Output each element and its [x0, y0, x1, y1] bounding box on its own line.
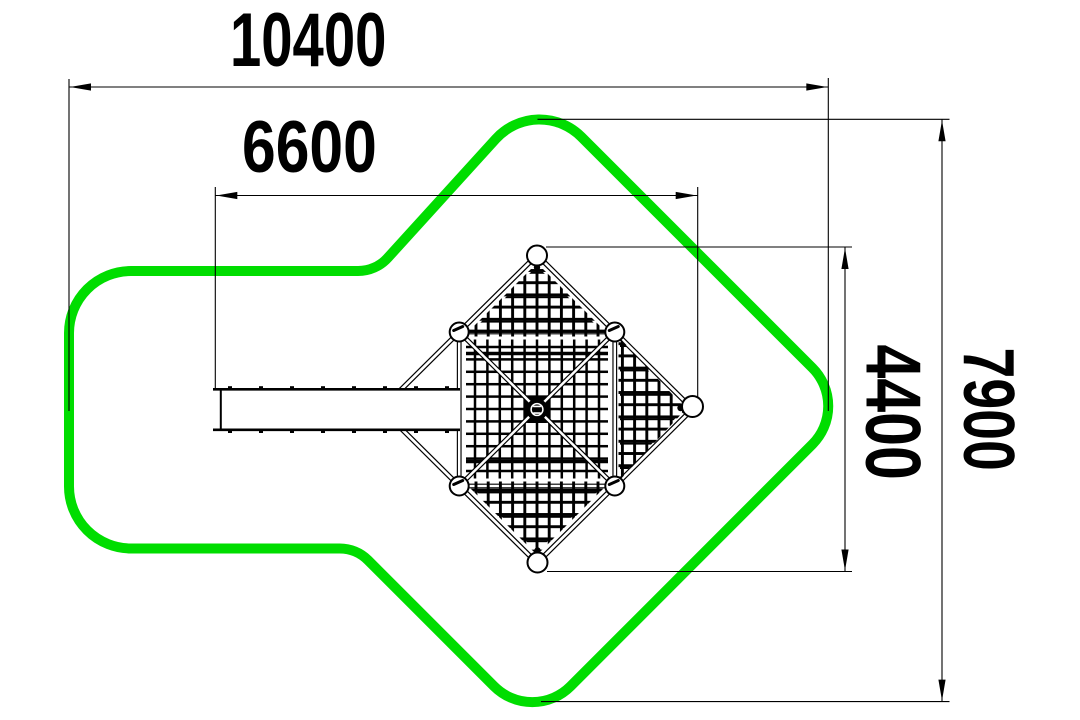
svg-text:6600: 6600	[242, 107, 377, 189]
svg-text:7900: 7900	[948, 348, 1029, 471]
svg-text:4400: 4400	[850, 345, 937, 480]
svg-text:10400: 10400	[230, 0, 386, 83]
